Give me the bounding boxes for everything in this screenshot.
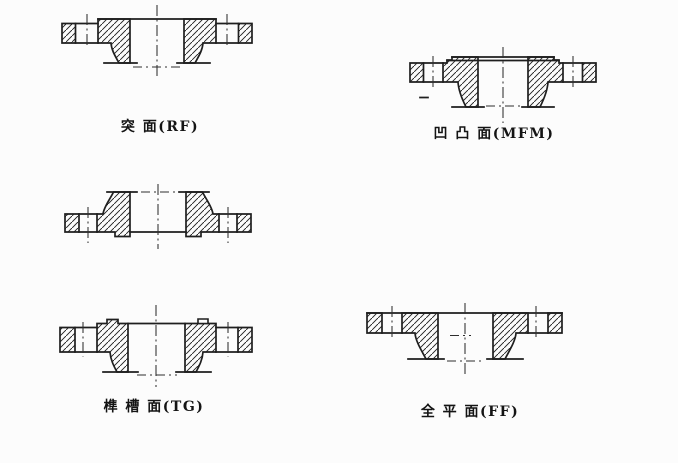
ff-flange-drawing: [367, 303, 562, 374]
rf-left-outer-ring-section: [62, 24, 76, 44]
label-raised-face: 突 面(RF): [121, 116, 199, 136]
ff-right-hub-section: [493, 313, 528, 359]
rf-flange-drawing: [62, 5, 252, 78]
tg-right-hub-section: [185, 324, 216, 373]
label-male-female-face: 凹 凸 面(MFM): [434, 123, 555, 143]
ff-right-outer-ring-section: [548, 313, 562, 333]
mfm-left-outer-ring-section: [410, 63, 424, 82]
tg-flange-drawing: [60, 305, 252, 387]
label-tongue-groove-face: 榫 槽 面(TG): [104, 396, 205, 416]
mating-right-outer-ring-section: [237, 214, 251, 232]
flange-face-types-figure: 突 面(RF) 凹 凸 面(MFM) 榫 槽 面(TG) 全 平 面(FF): [0, 0, 678, 463]
mating-half-flange-drawing: [65, 184, 251, 249]
label-flat-face: 全 平 面(FF): [421, 401, 519, 421]
tg-left-outer-ring-section: [60, 328, 75, 353]
tg-left-hub-section: [97, 320, 128, 373]
mating-left-outer-ring-section: [65, 214, 79, 232]
tg-groove-detail: [198, 319, 208, 324]
mfm-left-hub-section: [443, 57, 478, 107]
rf-right-outer-ring-section: [239, 24, 253, 44]
ff-left-hub-section: [402, 313, 438, 359]
mfm-right-hub-section: [528, 57, 563, 107]
rf-left-hub-section: [98, 19, 130, 63]
rf-right-hub-section: [184, 19, 216, 63]
ff-left-outer-ring-section: [367, 313, 382, 333]
mfm-flange-drawing: [410, 47, 596, 123]
mfm-right-outer-ring-section: [583, 63, 597, 82]
flange-drawings-canvas: [0, 0, 678, 463]
mating-right-hub-section: [186, 192, 219, 237]
tg-right-outer-ring-section: [238, 328, 252, 353]
mating-left-hub-section: [97, 192, 130, 237]
